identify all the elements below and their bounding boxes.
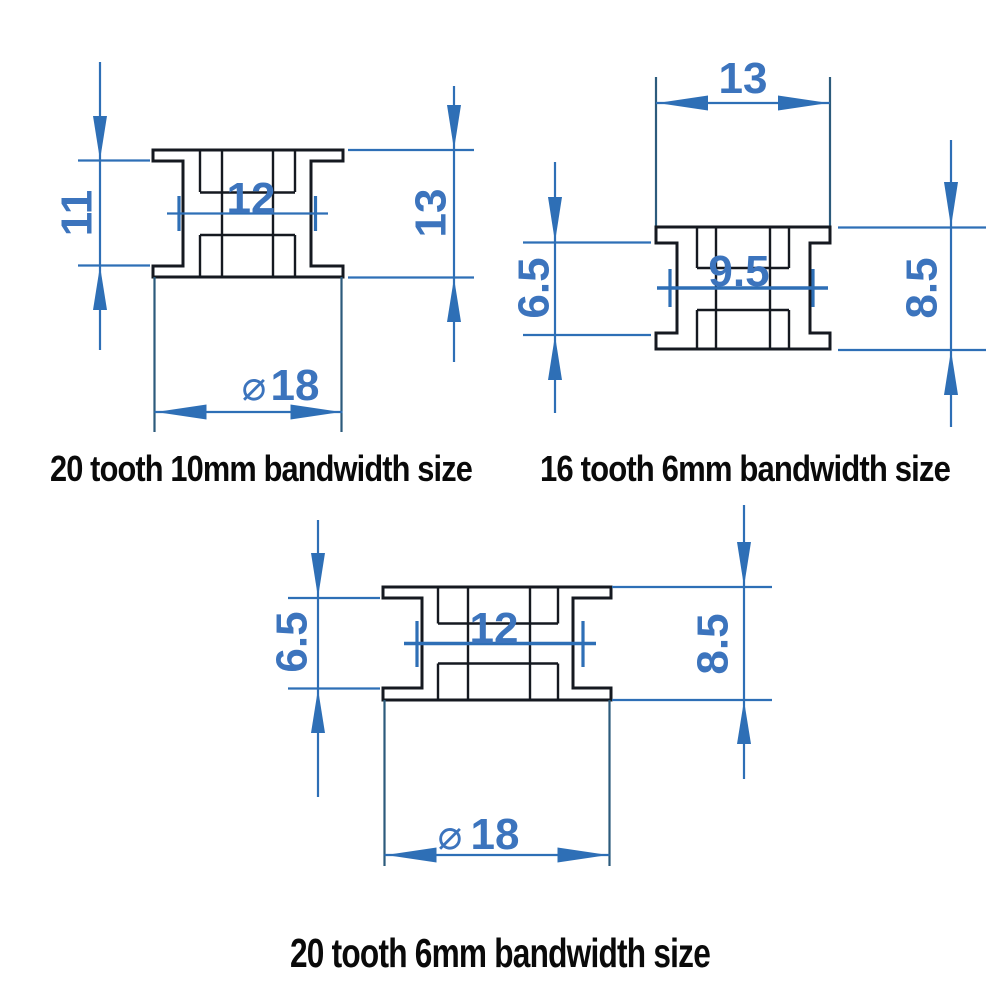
dimension-value: 13 bbox=[406, 189, 455, 238]
arrow-up-icon bbox=[944, 351, 958, 396]
diagram-20-tooth-10mm: 11 13 12 ⌀ 18 20 tooth 10mm bandwidth si… bbox=[50, 62, 474, 489]
dimension-diameter-18: ⌀ 18 bbox=[155, 361, 343, 420]
diagram-20-tooth-6mm: 12 6.5 8.5 ⌀ 18 20 tooth 6mm bandwidth s… bbox=[267, 505, 772, 976]
arrow-up-icon bbox=[311, 689, 325, 733]
dimension-value: 6.5 bbox=[267, 611, 316, 672]
dimension-diameter-18: ⌀ 18 bbox=[385, 810, 610, 863]
dimension-value: 8.5 bbox=[897, 257, 946, 318]
arrow-left-icon bbox=[386, 848, 437, 863]
arrow-down-icon bbox=[944, 182, 958, 227]
dimension-value: 9.5 bbox=[708, 247, 769, 296]
dimension-belt-width-6-5: 6.5 bbox=[509, 162, 651, 413]
diameter-symbol: ⌀ bbox=[242, 362, 267, 410]
dimension-value: 6.5 bbox=[509, 257, 558, 318]
arrow-right-icon bbox=[778, 96, 829, 111]
arrow-down-icon bbox=[548, 197, 562, 242]
dimension-value: 18 bbox=[271, 361, 320, 410]
dimension-total-width-13: 13 bbox=[348, 86, 474, 362]
dimension-bore-width-9-5: 9.5 bbox=[657, 247, 828, 307]
dimension-bore-width-12: 12 bbox=[404, 604, 596, 667]
dimension-bore-width-12: 12 bbox=[167, 174, 328, 231]
dimension-total-width-8-5: 8.5 bbox=[612, 505, 772, 779]
diagram-caption: 20 tooth 10mm bandwidth size bbox=[50, 448, 472, 489]
dimension-value: 12 bbox=[470, 604, 519, 653]
dimension-value: 18 bbox=[471, 810, 520, 859]
diameter-symbol: ⌀ bbox=[438, 811, 463, 859]
drawing-canvas: 11 13 12 ⌀ 18 20 tooth 10mm bandwidth si… bbox=[0, 0, 1000, 1000]
arrow-down-icon bbox=[447, 105, 461, 150]
arrow-up-icon bbox=[548, 336, 562, 381]
dimension-belt-width-11: 11 bbox=[52, 62, 150, 350]
diagram-caption: 20 tooth 6mm bandwidth size bbox=[290, 930, 710, 976]
dimension-total-width-8-5: 8.5 bbox=[838, 140, 986, 427]
dimension-value: 11 bbox=[52, 190, 101, 237]
arrow-right-icon bbox=[558, 848, 609, 863]
dimension-value: 13 bbox=[719, 54, 768, 103]
dimension-belt-width-6-5: 6.5 bbox=[267, 520, 380, 797]
arrow-down-icon bbox=[93, 116, 107, 160]
dimension-hub-width-13: 13 bbox=[656, 54, 830, 111]
arrow-up-icon bbox=[93, 266, 107, 310]
pulley-dimension-drawing: 11 13 12 ⌀ 18 20 tooth 10mm bandwidth si… bbox=[0, 0, 1000, 1000]
arrow-left-icon bbox=[156, 405, 207, 420]
arrow-left-icon bbox=[658, 96, 709, 111]
diagram-16-tooth-6mm: 13 9.5 6.5 8.5 16 tooth 6mm bandwidth si… bbox=[509, 54, 986, 489]
arrow-up-icon bbox=[447, 278, 461, 322]
diagram-caption: 16 tooth 6mm bandwidth size bbox=[540, 448, 950, 489]
arrow-up-icon bbox=[737, 701, 751, 745]
dimension-value: 8.5 bbox=[688, 613, 737, 674]
dimension-value: 12 bbox=[227, 174, 276, 223]
arrow-down-icon bbox=[737, 542, 751, 587]
arrow-down-icon bbox=[311, 553, 325, 598]
